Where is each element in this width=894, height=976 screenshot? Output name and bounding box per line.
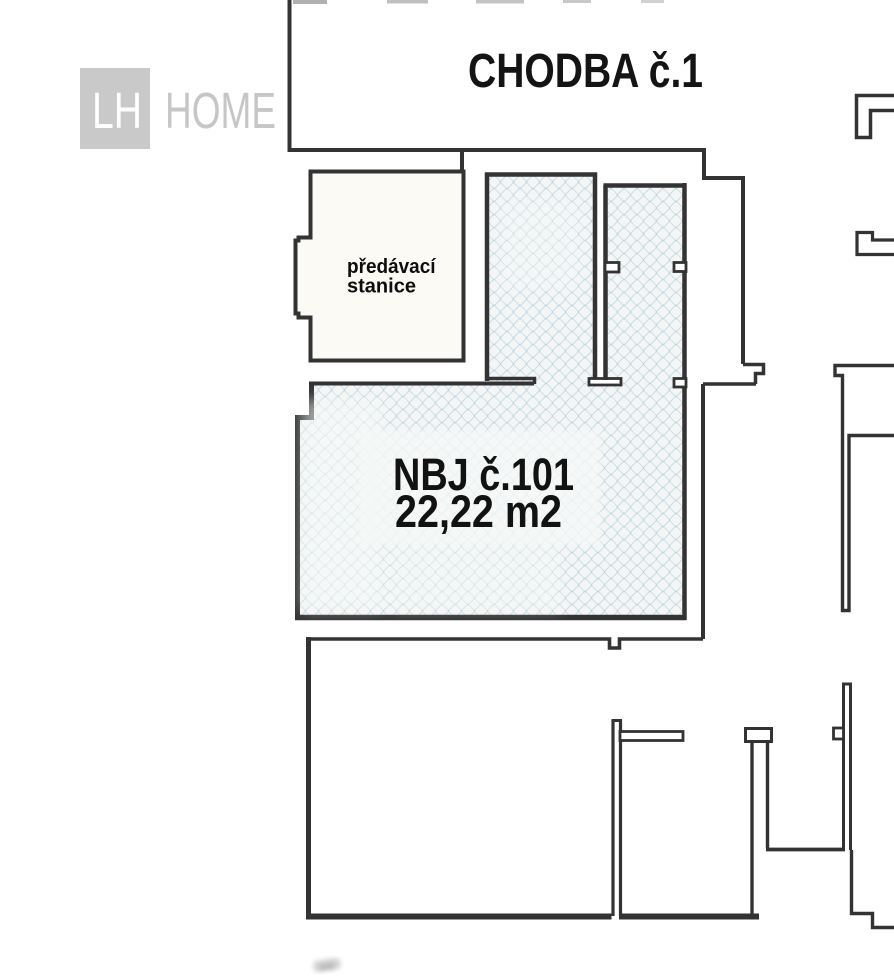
svg-text:22,22 m2: 22,22 m2 [395,486,562,537]
svg-text:HOME: HOME [165,82,276,139]
svg-text:CHODBA č.1: CHODBA č.1 [468,45,703,98]
svg-text:LH: LH [92,82,142,139]
svg-text:stanice: stanice [347,276,416,298]
